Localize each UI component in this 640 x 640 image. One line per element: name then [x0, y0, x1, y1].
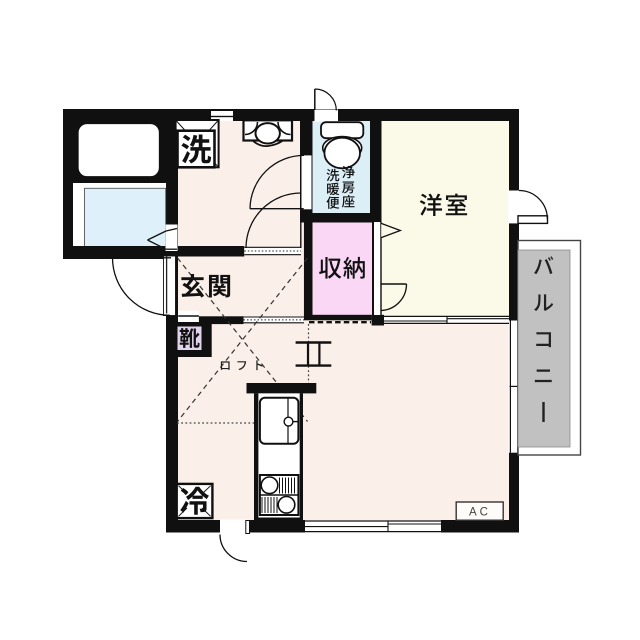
svg-text:AC: AC — [469, 507, 491, 519]
